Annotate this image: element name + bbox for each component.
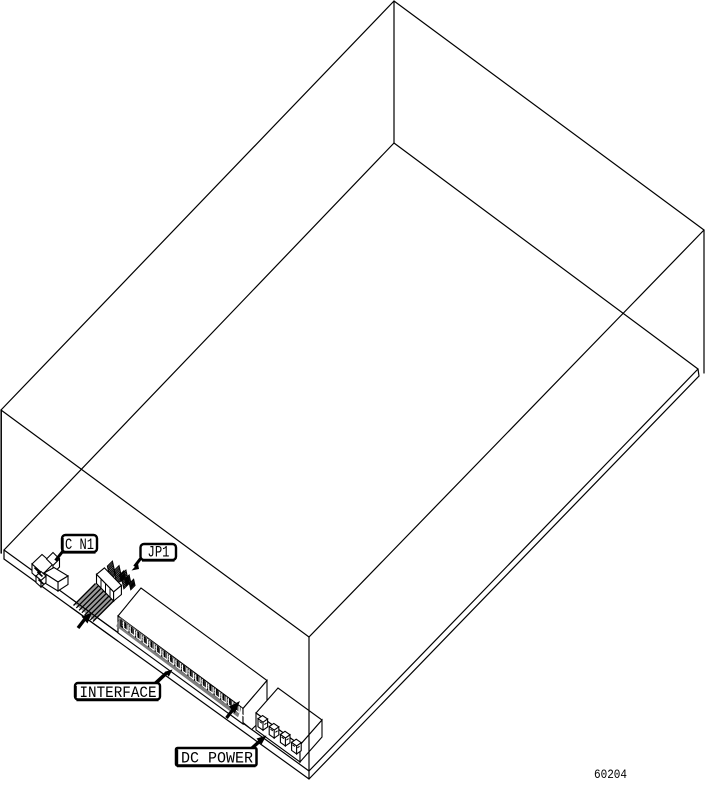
- svg-text:C N1: C N1: [65, 536, 94, 554]
- svg-text:JP1: JP1: [148, 544, 170, 562]
- svg-text:60204: 60204: [594, 768, 627, 782]
- svg-text:INTERFACE: INTERFACE: [80, 684, 157, 702]
- svg-text:DC POWER: DC POWER: [181, 750, 253, 768]
